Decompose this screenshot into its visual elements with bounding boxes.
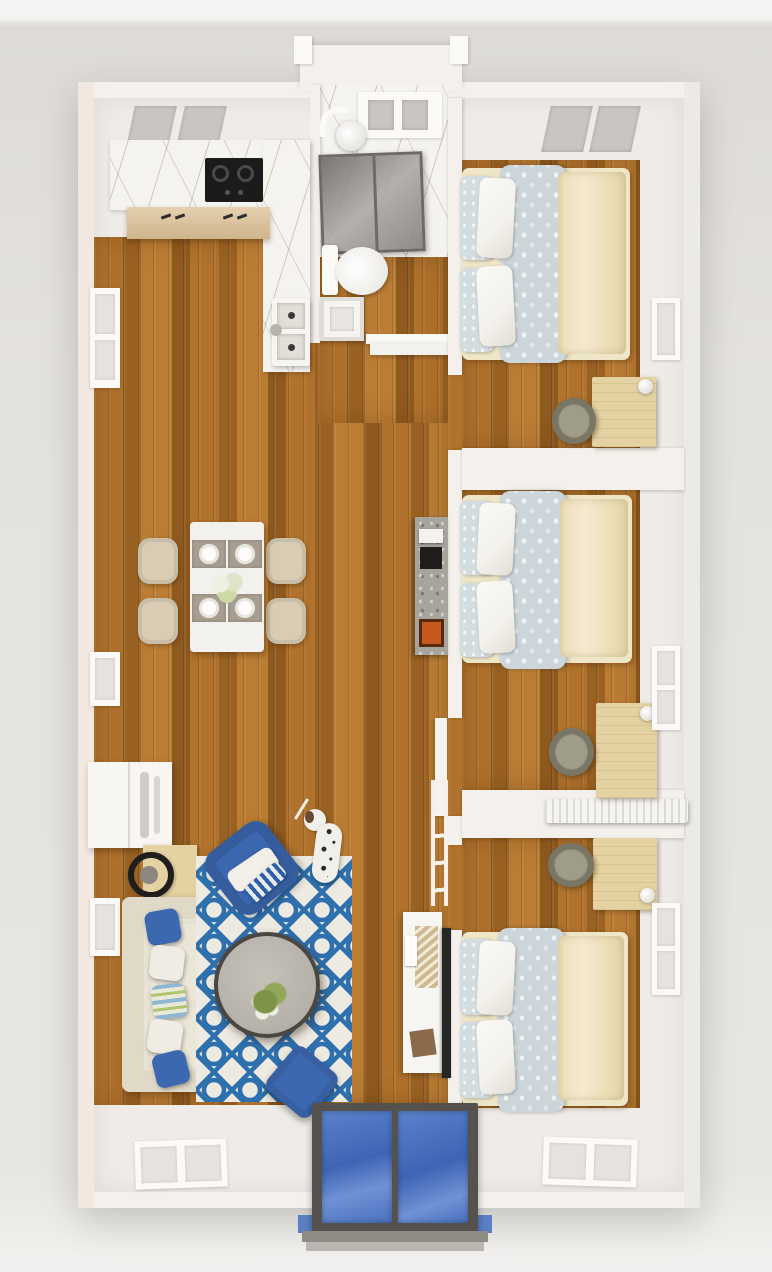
bedroom1 (462, 98, 684, 448)
bed2-blanket (560, 499, 628, 657)
bed3 (462, 932, 628, 1106)
left-window-3 (90, 898, 120, 956)
tv-console-books (415, 926, 438, 988)
bedroom1-top-window-1 (541, 106, 593, 152)
sofa-pillow-white-1 (148, 944, 186, 982)
bathroom-door-leaf (370, 342, 448, 355)
tv-console-photos (405, 936, 417, 966)
bedroom1-desk (592, 377, 656, 447)
bedroom3-bottom-window (542, 1136, 638, 1187)
dalmatian-dog (298, 795, 350, 887)
bed3-pillow (476, 1019, 516, 1095)
center-wall-seg3 (448, 816, 462, 845)
dining-chair-1 (138, 538, 178, 584)
living-bottom-window (134, 1138, 228, 1189)
flower-centerpiece (206, 568, 248, 608)
bedroom3-desk (593, 838, 657, 910)
front-door-glass-right (398, 1111, 468, 1223)
left-window-2 (90, 652, 120, 706)
bed3-blanket (558, 936, 624, 1100)
doorway2-floor (448, 718, 462, 816)
dog-body (310, 822, 343, 885)
tv-console-box (409, 1028, 436, 1057)
bed2 (462, 495, 632, 663)
right-window-3 (652, 903, 680, 995)
faucet (270, 324, 282, 336)
porch-step-2 (306, 1242, 484, 1251)
console-decor-white (419, 529, 443, 543)
divider-bed1-bed2 (462, 448, 684, 490)
bedroom2-desk (596, 703, 657, 798)
bedroom3-desk-lamp (640, 888, 655, 903)
cooktop (205, 158, 263, 202)
bump-out-cap-left (294, 36, 312, 64)
floor-plan-render (0, 0, 772, 1272)
bump-out-cap-right (450, 36, 468, 64)
wall-tv (442, 928, 451, 1078)
bedroom1-top-window-2 (589, 106, 641, 152)
coffee-table (214, 932, 320, 1038)
radiator-shelf (545, 799, 688, 823)
sofa-pillow-blue-1 (143, 907, 182, 946)
right-window-1 (652, 298, 680, 360)
right-window-2 (652, 646, 680, 730)
doorway1-floor (448, 375, 462, 450)
place-setting (192, 540, 226, 568)
sofa-pillow-chevron (150, 982, 188, 1020)
bed3-pillow (476, 940, 516, 1016)
front-door-glass-left (322, 1111, 392, 1223)
console-table (415, 517, 448, 655)
bed1-blanket (558, 172, 626, 354)
dining-area (130, 515, 320, 660)
doorway3-floor (448, 845, 462, 930)
dining-chair-4 (266, 598, 306, 644)
ring-decor (128, 852, 174, 898)
kitchen (94, 98, 448, 238)
console-decor-black (420, 547, 442, 569)
bedroom2 (462, 490, 684, 790)
ladder-shelf (431, 780, 448, 906)
bed2-pillow (476, 502, 516, 576)
bed1-pillow (476, 177, 516, 259)
coffee-table-plant (240, 972, 296, 1026)
place-setting (228, 540, 262, 568)
vanity-sink (320, 297, 364, 341)
tv-console (403, 912, 442, 1073)
console-book-orange (419, 619, 444, 647)
bedroom3-chair (548, 843, 594, 887)
porch-step-1 (302, 1231, 488, 1242)
bed1 (462, 168, 630, 360)
front-door-frame (312, 1103, 478, 1233)
base-cabinets (127, 207, 270, 239)
bed2-pillow (476, 580, 516, 654)
kitchen-sink (272, 298, 310, 366)
bedroom2-chair (549, 728, 594, 776)
dining-table (190, 522, 264, 652)
entry (290, 1103, 500, 1263)
left-window-1 (90, 288, 120, 388)
toilet-bowl (336, 247, 388, 295)
dining-chair-2 (138, 598, 178, 644)
bed1-pillow (476, 265, 516, 347)
outer-wall-right (684, 82, 700, 1208)
dining-chair-3 (266, 538, 306, 584)
wall-cabinet (88, 762, 172, 848)
bedroom1-chair (552, 398, 596, 444)
bedroom1-desk-lamp (638, 379, 653, 394)
center-wall-seg2 (448, 450, 462, 718)
outer-wall-left (78, 82, 94, 1208)
